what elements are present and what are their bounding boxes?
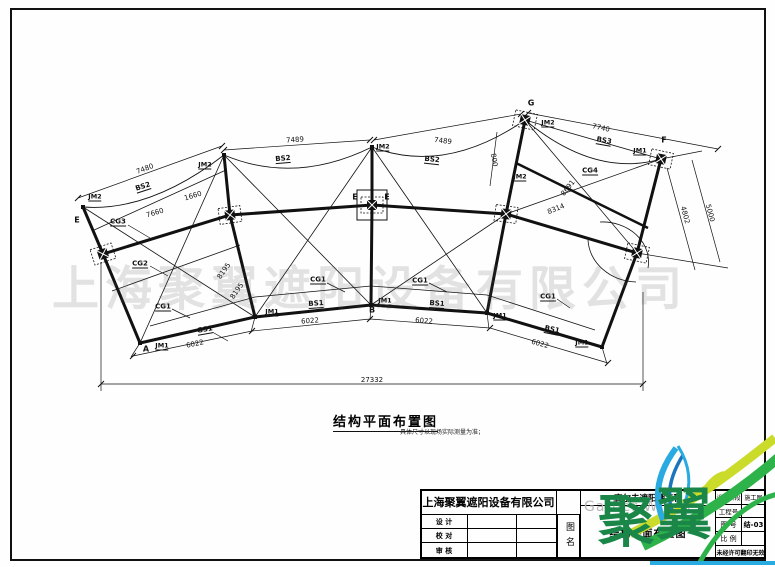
figure-name-side-label: 图名 [557, 514, 580, 559]
logo-cn-text: 聚翼 [598, 488, 714, 558]
node-label: JM2 [88, 193, 101, 202]
member-label: CG1 [540, 293, 556, 302]
structural-plan-svg [0, 0, 775, 567]
copyright-notice: 未经许可翻印无效 [715, 545, 766, 559]
node-label: JM1 [155, 342, 168, 351]
logo-char-2: 翼 [656, 483, 714, 548]
project-no-label: 工程号 [715, 504, 742, 518]
auditor-value-cell [467, 542, 517, 559]
figure-no-label: 图 号 [715, 517, 742, 532]
letter-label: F [661, 136, 666, 145]
logo-char-1: 聚 [598, 490, 656, 555]
auditor-label: 审 核 [420, 542, 468, 559]
stage-value: 施工图 [741, 489, 766, 505]
designer-label: 设 计 [420, 514, 468, 529]
dim-label: 6022 [301, 316, 319, 325]
member-label: CG1 [310, 276, 326, 285]
dim-label: 6022 [415, 316, 433, 326]
designer-value-cell [467, 514, 517, 529]
column-symbols [90, 110, 673, 265]
member-label: BS2 [275, 154, 291, 164]
node-label: JM1 [378, 297, 391, 306]
member-label: BS1 [429, 299, 445, 309]
checker-label: 校 对 [420, 528, 468, 543]
dim-label: 27332 [361, 376, 383, 384]
checker-value-cell [467, 528, 517, 543]
node-label: JM1 [633, 147, 646, 156]
node-label: JM1 [493, 312, 506, 321]
node-label: JM1 [265, 308, 278, 317]
stage-label: 设计阶段 [715, 489, 742, 505]
node-label: JM2 [513, 173, 526, 182]
auditor-date-cell [516, 542, 557, 559]
node-label: JM2 [198, 161, 211, 170]
member-label: BS2 [424, 155, 440, 166]
member-label: CG2 [132, 260, 148, 269]
member-label: CG1 [412, 277, 428, 286]
letter-label: E [352, 193, 357, 202]
project-no-value [741, 504, 766, 518]
letter-label: G [528, 99, 535, 108]
member-label: CG3 [110, 218, 126, 227]
node-label: JM1 [575, 339, 588, 348]
letter-label: E [384, 193, 389, 202]
drawing-note: 具体尺寸以现场实际测量为准； [400, 427, 484, 436]
node-label: JM2 [541, 119, 554, 128]
company-name-cell: 上海聚翼遮阳设备有限公司 [420, 489, 557, 515]
member-label: BS1 [308, 299, 324, 309]
figure-no-value: 结-03 [741, 517, 766, 532]
drawing-sheet: 7480748974897740766016608195819560226022… [0, 0, 775, 567]
letter-label: A [143, 345, 149, 354]
designer-date-cell [516, 514, 557, 529]
member-label: CG4 [582, 167, 598, 176]
checker-date-cell [516, 528, 557, 543]
letter-label: B [369, 306, 375, 315]
scale-value [741, 531, 766, 546]
logo-underline-bar [650, 561, 775, 565]
member-label: CG1 [155, 303, 171, 312]
stamp-cell [556, 489, 581, 515]
letter-label: E [74, 216, 79, 225]
scale-label: 比 例 [715, 531, 742, 546]
node-label: JM2 [376, 143, 389, 152]
dim-label: 7489 [286, 135, 304, 144]
side-label-text: 图名 [563, 522, 574, 552]
